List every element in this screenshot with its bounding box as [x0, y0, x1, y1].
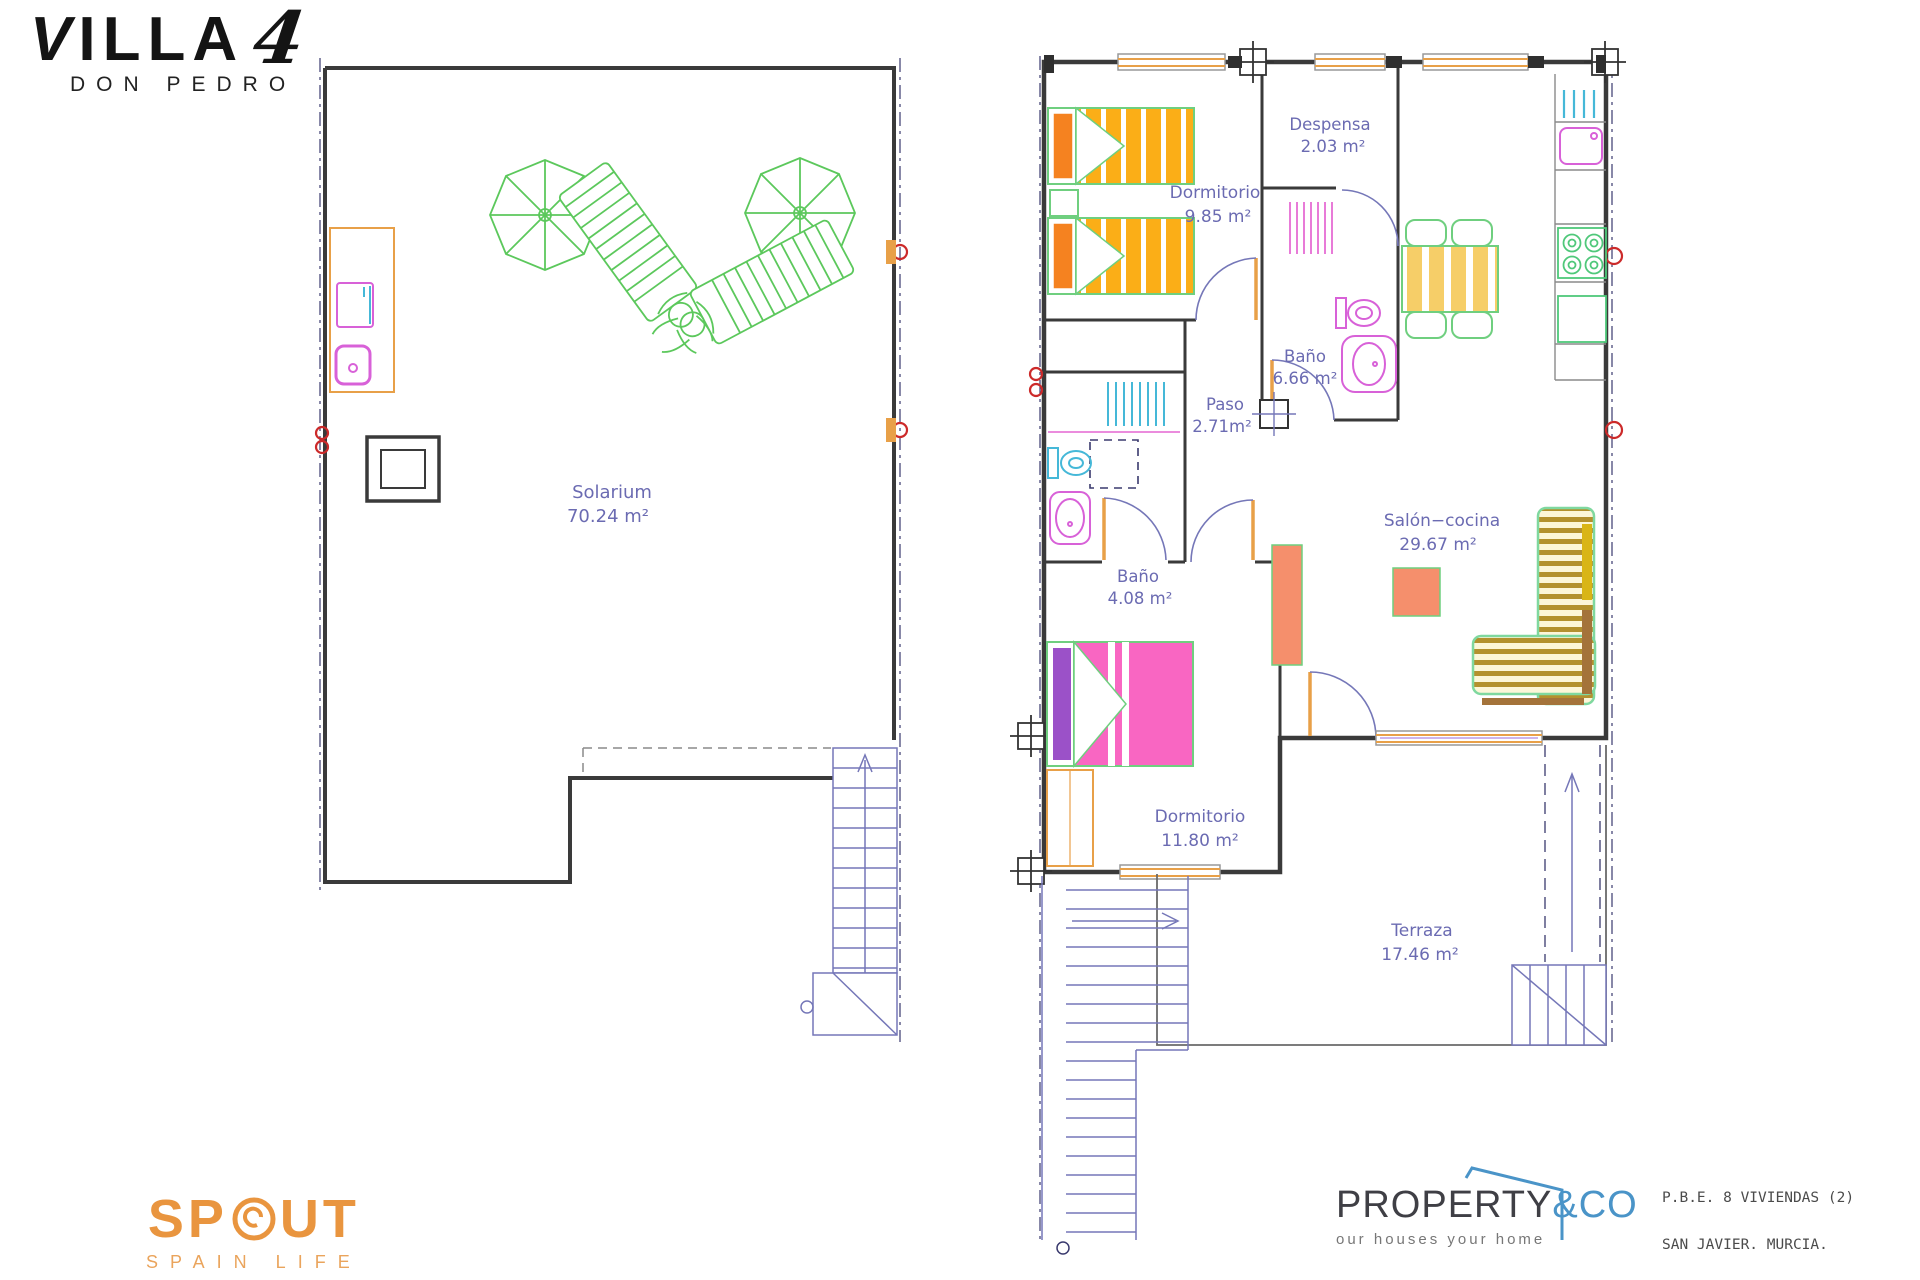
- bed-1: [1048, 108, 1194, 184]
- villa-logo: VILLA 4 DON PEDRO: [30, 6, 304, 97]
- dining-table: [1402, 246, 1498, 312]
- coffee-table: [1393, 568, 1440, 616]
- wardrobe: [1047, 770, 1093, 866]
- spout-subtitle: SPAIN LIFE: [146, 1252, 362, 1273]
- window-dorm2: [1120, 865, 1220, 879]
- kitchen: [1555, 74, 1606, 380]
- room-area-terraza: 17.46 m²: [1381, 945, 1458, 965]
- window-top-3: [1423, 54, 1528, 70]
- spout-logo: SP UT SPAIN LIFE: [146, 1192, 362, 1273]
- fridge-icon: [1558, 296, 1606, 342]
- chair: [1406, 220, 1446, 246]
- external-stairs: [1042, 876, 1188, 1254]
- washing-machine-icon: [337, 283, 373, 327]
- dashed-edge: [583, 748, 831, 778]
- property-logo: PROPERTY&CO our houses your home: [1336, 1186, 1638, 1248]
- shower-tray: [1090, 440, 1138, 488]
- kitchen-sink-icon: [1560, 128, 1602, 164]
- spiral-o-icon: [231, 1196, 277, 1242]
- towel-radiator-icon: [1290, 202, 1332, 254]
- room-area-bano2: 4.08 m²: [1108, 589, 1173, 608]
- room-label-bano1: Baño: [1284, 347, 1326, 366]
- floorplan-drawing: Solarium 70.24 m²: [0, 0, 1920, 1280]
- skylight: [367, 437, 439, 501]
- room-area-dormitorio2: 11.80 m²: [1161, 831, 1238, 851]
- solarium-stairs: [801, 748, 897, 1035]
- house-roof-icon: [1464, 1150, 1574, 1242]
- stove-icon: [1558, 228, 1606, 278]
- room-area-paso: 2.71m²: [1192, 417, 1251, 436]
- room-label-bano2: Baño: [1117, 567, 1159, 586]
- room-area-bano1: 6.66 m²: [1273, 369, 1338, 388]
- bathroom2-fixtures: [1048, 382, 1180, 544]
- bed-2: [1048, 218, 1194, 294]
- room-area-solarium: 70.24 m²: [567, 506, 649, 527]
- room-area-despensa: 2.03 m²: [1301, 137, 1366, 156]
- terraza: [1157, 745, 1606, 1045]
- project-info-line: P.B.E. 8 VIVIENDAS (2): [1662, 1191, 1854, 1207]
- drain-rack-icon: [1564, 90, 1594, 118]
- wall-highlight: [886, 240, 896, 264]
- room-area-dormitorio1: 9.85 m²: [1185, 207, 1252, 227]
- window-top-1: [1118, 54, 1225, 70]
- room-label-dormitorio2: Dormitorio: [1155, 807, 1246, 827]
- room-label-salon: Salón−cocina: [1384, 511, 1500, 531]
- room-label-despensa: Despensa: [1289, 115, 1370, 134]
- room-area-salon: 29.67 m²: [1399, 535, 1476, 555]
- sofa-l-shape: [1473, 508, 1595, 705]
- chair: [1452, 312, 1492, 338]
- villa-logo-number: 4: [250, 6, 309, 71]
- chair: [1406, 312, 1446, 338]
- project-info-block: P.B.E. 8 VIVIENDAS (2) SAN JAVIER. MURCI…: [1662, 1160, 1854, 1280]
- room-label-solarium: Solarium: [572, 482, 652, 503]
- spout-word-end: UT: [280, 1192, 360, 1246]
- terraza-stair-arrow: [1565, 774, 1579, 952]
- window-salon: [1376, 731, 1542, 745]
- toilet-icon: [1048, 448, 1091, 478]
- room-label-paso: Paso: [1206, 395, 1244, 414]
- project-info-line: SAN JAVIER. MURCIA.: [1662, 1238, 1854, 1254]
- washbasin-icon: [1050, 492, 1090, 544]
- room-label-terraza: Terraza: [1390, 921, 1452, 941]
- outdoor-counter: [330, 228, 394, 392]
- dining-set: [1402, 220, 1498, 338]
- apartment-plan: Despensa 2.03 m² Dormitorio 9.85 m² Baño…: [1010, 41, 1626, 1254]
- chair: [1452, 220, 1492, 246]
- tv-unit: [1272, 545, 1302, 665]
- terraza-stairs: [1512, 965, 1606, 1045]
- wall-highlight: [886, 418, 896, 442]
- villa-logo-word: VILLA: [30, 9, 244, 71]
- room-label-dormitorio1: Dormitorio: [1170, 183, 1261, 203]
- toilet-icon: [1336, 298, 1380, 328]
- floorplan-sheet: Solarium 70.24 m²: [0, 0, 1920, 1280]
- double-bed: [1047, 642, 1193, 766]
- lounger-1: [558, 161, 729, 365]
- shaft-symbol: [1252, 392, 1296, 436]
- shower-icon: [1108, 382, 1164, 426]
- spout-word-start: SP: [148, 1192, 228, 1246]
- solarium-plan: Solarium 70.24 m²: [316, 58, 907, 1042]
- washbasin-icon: [1342, 336, 1396, 392]
- window-top-2: [1315, 54, 1385, 70]
- nightstand: [1050, 190, 1078, 216]
